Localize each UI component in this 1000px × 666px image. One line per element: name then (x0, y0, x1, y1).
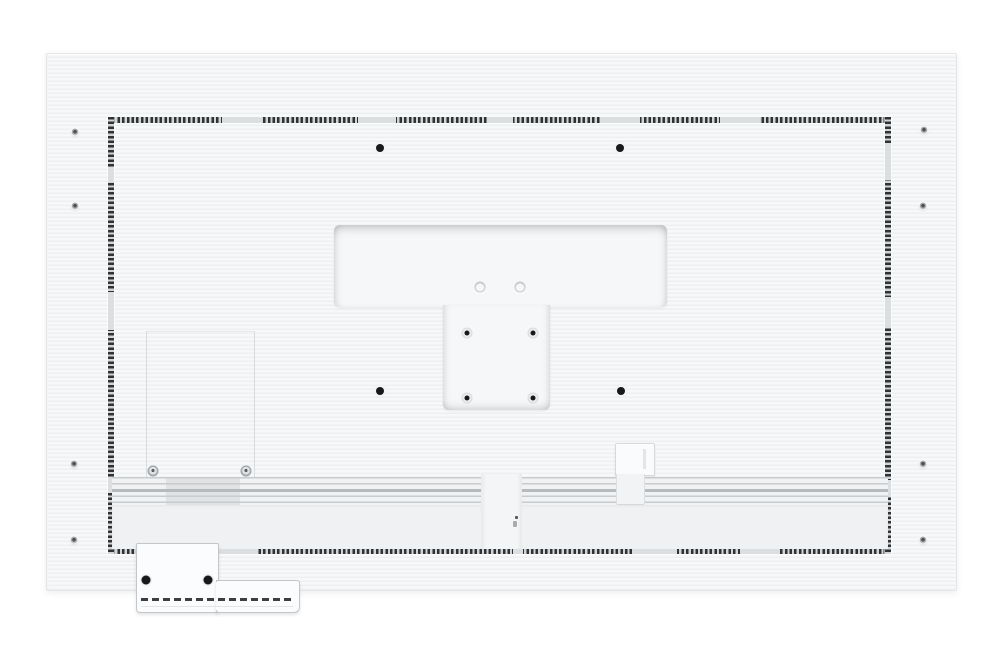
tray-hole (204, 576, 213, 585)
vesa-hole (531, 331, 536, 336)
mount-hole (376, 387, 384, 395)
frame-screw (71, 537, 78, 544)
mount-hole (616, 144, 624, 152)
wall-mount-recess-bar (334, 225, 667, 307)
frame-screw (71, 461, 78, 468)
service-panel-seam-top (146, 331, 255, 332)
vent-gap (487, 117, 513, 123)
tray-hole (142, 576, 151, 585)
vent-strip-top (108, 117, 891, 123)
vent-gap (108, 292, 114, 330)
service-panel-seam-right (254, 331, 255, 478)
mount-hole (617, 387, 625, 395)
vent-gap (885, 297, 891, 328)
vesa-hole (531, 396, 536, 401)
service-panel-seam-left (146, 331, 147, 478)
service-panel-screw (148, 466, 159, 477)
vesa-mount-recess (443, 305, 550, 410)
vesa-hole (465, 331, 470, 336)
cable-clip-slot (643, 449, 646, 469)
service-panel-screw (241, 466, 252, 477)
recess-ring (475, 282, 486, 293)
vent-gap (108, 167, 114, 182)
center-cable-column (481, 474, 522, 549)
tray-module-right-section (216, 580, 300, 613)
center-column-screw-dot (515, 516, 518, 519)
center-column-slot (513, 521, 517, 527)
frame-screw (72, 129, 79, 136)
frame-screw (920, 461, 927, 468)
product-photo-display-rear (0, 0, 1000, 666)
vesa-hole (465, 396, 470, 401)
frame-screw (72, 203, 79, 210)
vent-gap (885, 143, 891, 180)
tray-vent-dashes (141, 598, 293, 601)
vent-gap (358, 117, 396, 123)
frame-screw (921, 127, 928, 134)
vent-gap (222, 117, 262, 123)
cable-clip-tab-lower (616, 474, 645, 505)
frame-screw (920, 537, 927, 544)
tray-bottom-groove (141, 606, 293, 607)
cable-clip-tab-upper (615, 443, 655, 476)
recess-ring (515, 282, 526, 293)
vent-gap (600, 117, 640, 123)
mount-hole (376, 144, 384, 152)
frame-screw (920, 203, 927, 210)
vent-gap (720, 117, 760, 123)
